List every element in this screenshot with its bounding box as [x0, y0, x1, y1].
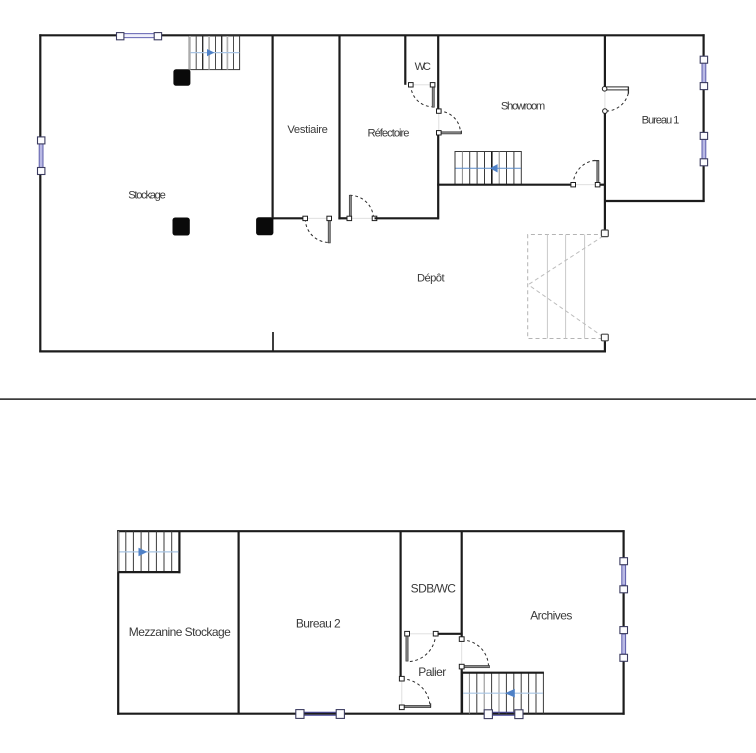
svg-text:Bureau 1: Bureau 1	[642, 115, 679, 127]
svg-text:Palier: Palier	[418, 665, 446, 679]
svg-text:Stockage: Stockage	[128, 189, 165, 201]
svg-text:Bureau 2: Bureau 2	[296, 617, 341, 631]
svg-text:Mezzanine Stockage: Mezzanine Stockage	[129, 625, 231, 639]
svg-text:Showroom: Showroom	[501, 100, 545, 112]
svg-text:Vestiaire: Vestiaire	[287, 124, 327, 136]
svg-text:SDB/WC: SDB/WC	[411, 582, 457, 596]
svg-text:Archives: Archives	[530, 608, 572, 622]
svg-text:Réfectoire: Réfectoire	[368, 128, 410, 140]
svg-text:WC: WC	[415, 61, 431, 73]
svg-text:Dépôt: Dépôt	[417, 273, 446, 285]
